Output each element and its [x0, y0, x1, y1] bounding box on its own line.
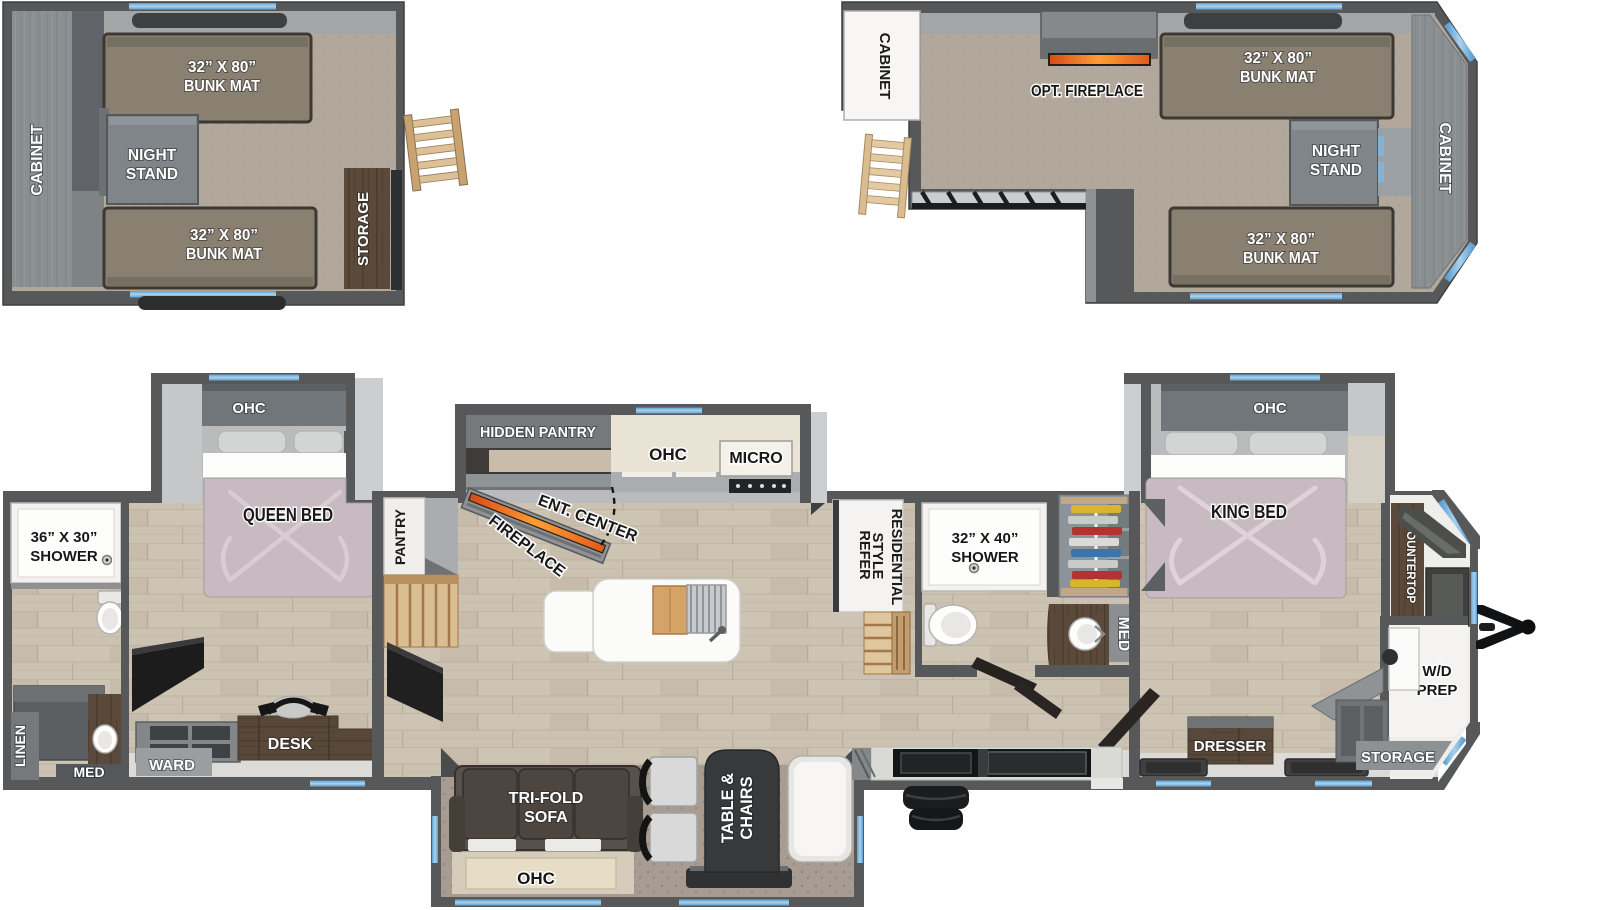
svg-text:SOFA: SOFA: [524, 809, 568, 826]
svg-text:NIGHT: NIGHT: [128, 147, 177, 164]
svg-text:BUNK MAT: BUNK MAT: [1240, 69, 1316, 86]
svg-text:BUNK MAT: BUNK MAT: [186, 246, 262, 263]
svg-text:OPT. FIREPLACE: OPT. FIREPLACE: [1031, 83, 1143, 100]
svg-text:BUNK MAT: BUNK MAT: [1243, 250, 1319, 267]
svg-text:QUEEN BED: QUEEN BED: [243, 505, 333, 525]
svg-text:MICRO: MICRO: [729, 450, 782, 467]
svg-text:32” X 80”: 32” X 80”: [1247, 231, 1315, 248]
svg-text:SHOWER: SHOWER: [951, 549, 1019, 566]
svg-text:WARD: WARD: [149, 757, 195, 774]
svg-text:CHAIRS: CHAIRS: [738, 776, 756, 839]
svg-text:32” X 80”: 32” X 80”: [1244, 50, 1312, 67]
svg-text:NIGHT: NIGHT: [1312, 143, 1361, 160]
svg-text:OHC: OHC: [649, 445, 687, 464]
svg-text:RESIDENTIAL: RESIDENTIAL: [888, 509, 904, 606]
svg-text:CABINET: CABINET: [1436, 122, 1453, 193]
svg-text:STAND: STAND: [1310, 162, 1362, 179]
svg-text:REFER: REFER: [856, 530, 872, 580]
svg-text:PANTRY: PANTRY: [392, 508, 408, 565]
svg-text:STORAGE: STORAGE: [355, 192, 372, 266]
svg-text:TABLE &: TABLE &: [719, 773, 737, 843]
svg-text:CABINET: CABINET: [876, 33, 893, 100]
svg-text:32” X 80”: 32” X 80”: [188, 59, 256, 76]
svg-text:SHOWER: SHOWER: [30, 548, 98, 565]
svg-text:DRESSER: DRESSER: [1194, 738, 1267, 755]
svg-text:36” X 30”: 36” X 30”: [31, 529, 98, 546]
svg-text:KING BED: KING BED: [1211, 502, 1287, 522]
svg-text:32” X 40”: 32” X 40”: [952, 530, 1019, 547]
svg-text:W/D: W/D: [1422, 663, 1451, 680]
svg-text:DESK: DESK: [268, 736, 313, 753]
svg-text:HIDDEN PANTRY: HIDDEN PANTRY: [480, 424, 596, 441]
svg-text:TRI-FOLD: TRI-FOLD: [509, 790, 584, 807]
svg-text:LINEN: LINEN: [12, 725, 28, 767]
svg-text:PREP: PREP: [1417, 682, 1458, 699]
svg-text:OHC: OHC: [232, 400, 266, 417]
svg-text:COUNTERTOP: COUNTERTOP: [1404, 523, 1416, 604]
svg-text:OHC: OHC: [1253, 400, 1287, 417]
svg-text:CABINET: CABINET: [29, 124, 46, 195]
svg-text:MED: MED: [73, 764, 104, 780]
svg-text:BUNK MAT: BUNK MAT: [184, 78, 260, 95]
svg-text:32” X 80”: 32” X 80”: [190, 227, 258, 244]
svg-text:OHC: OHC: [517, 869, 555, 888]
svg-text:STAND: STAND: [126, 166, 178, 183]
svg-text:STORAGE: STORAGE: [1361, 749, 1435, 766]
